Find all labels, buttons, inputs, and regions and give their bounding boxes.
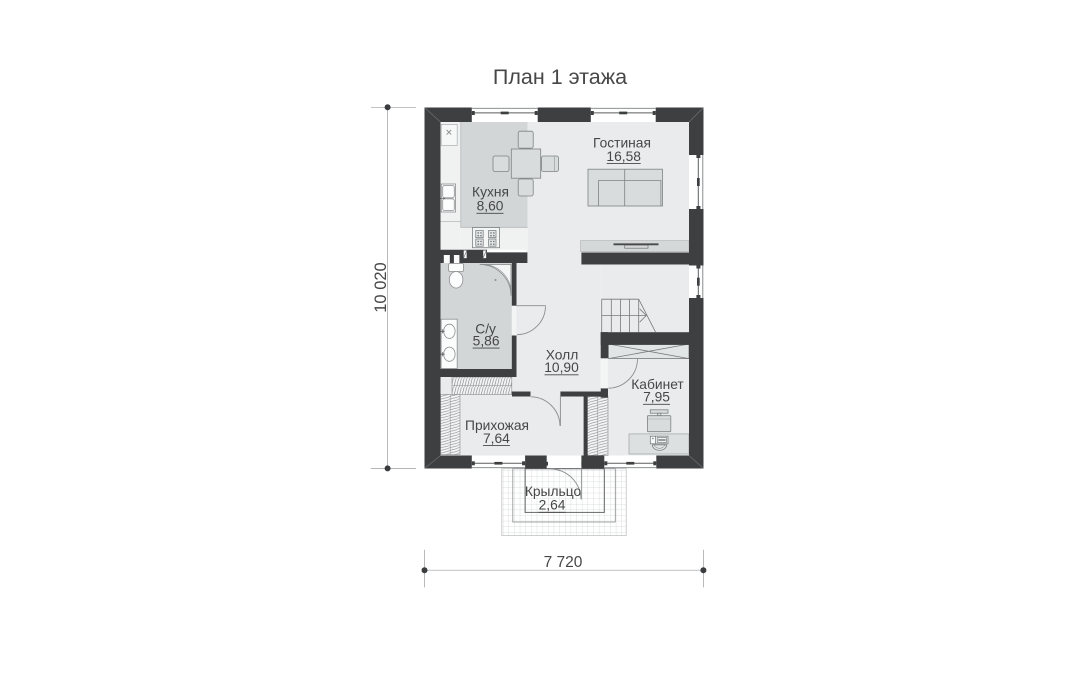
svg-text:Кухня: Кухня — [472, 185, 509, 200]
svg-text:7,95: 7,95 — [643, 390, 670, 405]
svg-text:8,60: 8,60 — [477, 199, 504, 214]
svg-text:План 1 этажа: План 1 этажа — [493, 65, 627, 89]
svg-text:7 720: 7 720 — [544, 554, 583, 571]
svg-text:5,86: 5,86 — [473, 333, 500, 348]
svg-text:16,58: 16,58 — [606, 149, 641, 164]
svg-text:10 020: 10 020 — [372, 262, 390, 312]
svg-text:2,64: 2,64 — [539, 498, 566, 513]
svg-text:7,64: 7,64 — [483, 431, 510, 446]
svg-text:10,90: 10,90 — [544, 360, 579, 375]
